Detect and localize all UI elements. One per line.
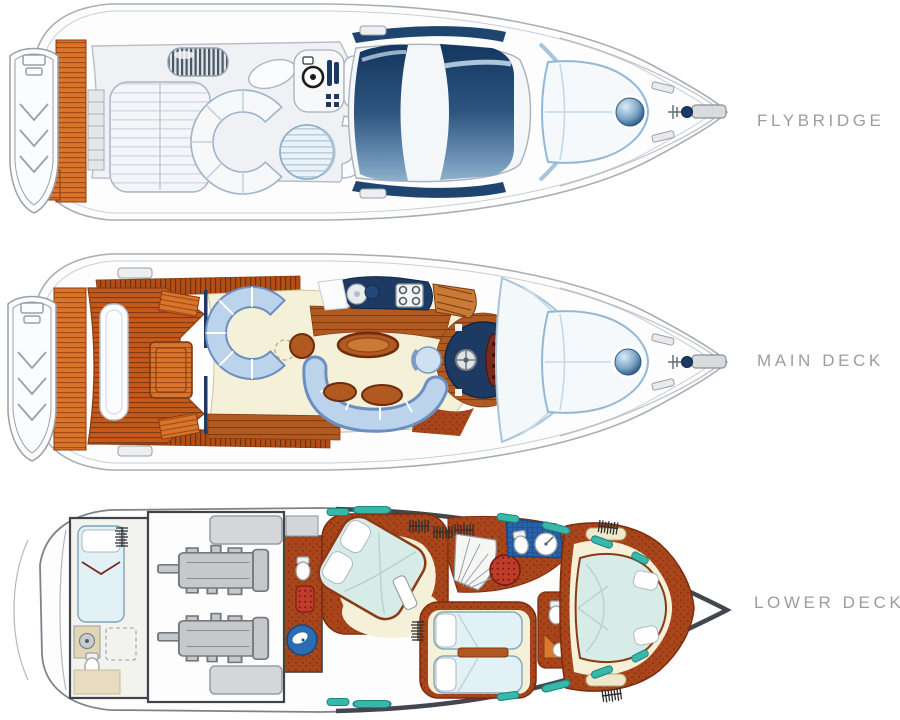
anchor-windlass-icon bbox=[668, 105, 726, 119]
side-hatch bbox=[118, 268, 152, 278]
anchor-windlass-icon bbox=[668, 355, 726, 369]
teak-platform bbox=[54, 288, 86, 450]
flybridge-access-stairs bbox=[88, 90, 104, 170]
twin-bed-2 bbox=[434, 656, 522, 693]
twin-bed-1 bbox=[434, 612, 522, 649]
nightstand bbox=[458, 648, 508, 657]
salon-door bbox=[203, 348, 209, 376]
pouf-seat bbox=[490, 555, 520, 585]
bow-sphere bbox=[615, 349, 641, 375]
cocktail-table bbox=[290, 334, 314, 358]
flybridge-table bbox=[280, 125, 334, 179]
vent-grille bbox=[168, 48, 228, 76]
tender-dinghy bbox=[10, 49, 58, 214]
side-hatch bbox=[118, 446, 152, 456]
windshield-glass-port bbox=[354, 45, 408, 181]
transom-line bbox=[14, 540, 28, 680]
yacht-deck-plans-figure: FLYBRIDGE MAIN DECK LOWER DECK bbox=[0, 0, 900, 720]
deck-label-flybridge: FLYBRIDGE bbox=[757, 111, 885, 131]
fuel-tank-port bbox=[210, 516, 282, 544]
fuel-tank-starboard bbox=[210, 666, 282, 694]
vip-cabin bbox=[560, 520, 694, 703]
seat bbox=[296, 586, 314, 612]
galley bbox=[318, 277, 433, 310]
side-hatch bbox=[360, 189, 386, 198]
tender-dinghy bbox=[8, 297, 56, 462]
companionway-stairs bbox=[433, 284, 476, 318]
aft-head-shower bbox=[287, 625, 317, 655]
helm-wheel-icon bbox=[456, 350, 476, 370]
deck-label-main-deck: MAIN DECK bbox=[757, 351, 884, 371]
side-hatch bbox=[360, 26, 386, 35]
coffee-table bbox=[324, 383, 356, 401]
flybridge-helm bbox=[294, 50, 344, 112]
engine-room bbox=[148, 512, 284, 702]
compass-icon bbox=[303, 57, 313, 64]
helm-seat bbox=[413, 347, 441, 373]
crew-cabin bbox=[70, 518, 148, 698]
bow-sphere bbox=[616, 98, 644, 126]
helm-wheel-icon bbox=[303, 67, 323, 87]
lower-deck-plan bbox=[14, 507, 728, 713]
yacht-plans-illustration bbox=[0, 0, 740, 720]
aft-head-toilet bbox=[296, 557, 310, 580]
coffee-table bbox=[362, 385, 402, 405]
dining-table bbox=[338, 333, 398, 357]
deck-label-lower-deck: LOWER DECK bbox=[754, 593, 900, 613]
twin-cabin bbox=[411, 602, 536, 698]
salon-sideboard bbox=[208, 414, 340, 440]
flybridge-plan bbox=[10, 4, 727, 220]
main-deck-plan bbox=[8, 254, 727, 470]
cockpit-bench bbox=[100, 304, 128, 420]
cabinet bbox=[286, 516, 318, 536]
aft-head bbox=[284, 516, 322, 672]
galley-stove bbox=[396, 284, 423, 307]
